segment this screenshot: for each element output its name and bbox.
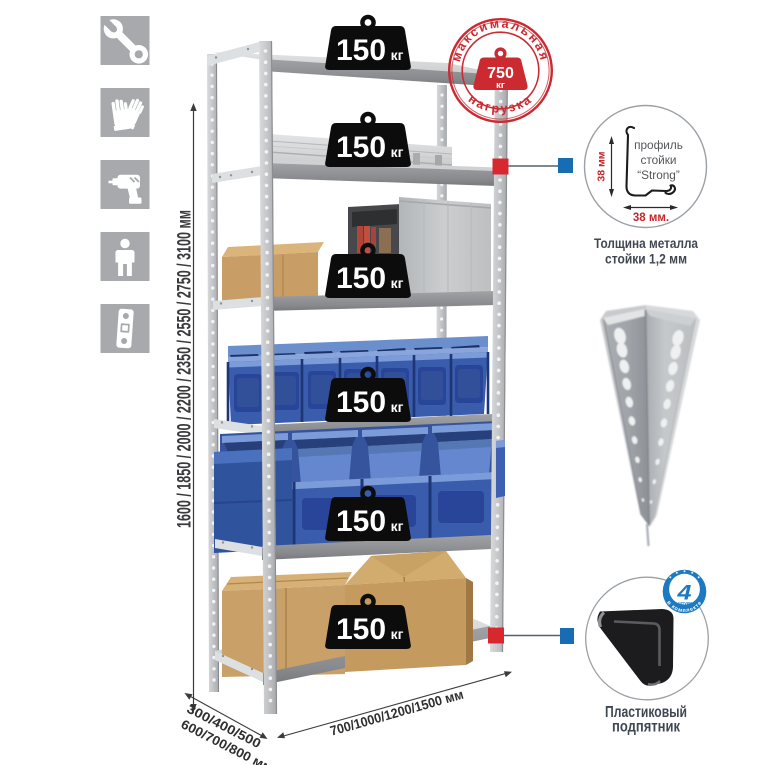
svg-text:150: 150 [336,386,386,419]
svg-text:700/1000/1200/1500 мм: 700/1000/1200/1500 мм [328,687,465,739]
svg-text:кг: кг [391,144,404,160]
svg-text:38 мм.: 38 мм. [633,212,669,224]
svg-text:кг: кг [391,626,404,642]
svg-text:кг: кг [391,275,404,291]
svg-text:стойки: стойки [640,153,676,167]
svg-text:кг: кг [391,47,404,63]
svg-text:профиль: профиль [634,138,683,152]
svg-text:150: 150 [336,613,386,646]
svg-text:кг: кг [496,80,505,91]
svg-text:подпятник: подпятник [612,719,680,736]
svg-text:кг: кг [391,518,404,534]
svg-text:штуки: штуки [678,600,692,605]
svg-text:150: 150 [336,34,386,67]
svg-text:“Strong”: “Strong” [637,168,680,182]
svg-text:150: 150 [336,131,386,164]
svg-text:150: 150 [336,262,386,295]
svg-text:1600 / 1850 / 2000 / 2200 / 23: 1600 / 1850 / 2000 / 2200 / 2350 / 2550 … [174,210,196,528]
svg-text:38 мм: 38 мм [596,151,608,181]
svg-text:150: 150 [336,505,386,538]
svg-text:Толщина металла: Толщина металла [594,236,698,251]
svg-text:стойки 1,2 мм: стойки 1,2 мм [605,252,687,267]
svg-text:кг: кг [391,399,404,415]
